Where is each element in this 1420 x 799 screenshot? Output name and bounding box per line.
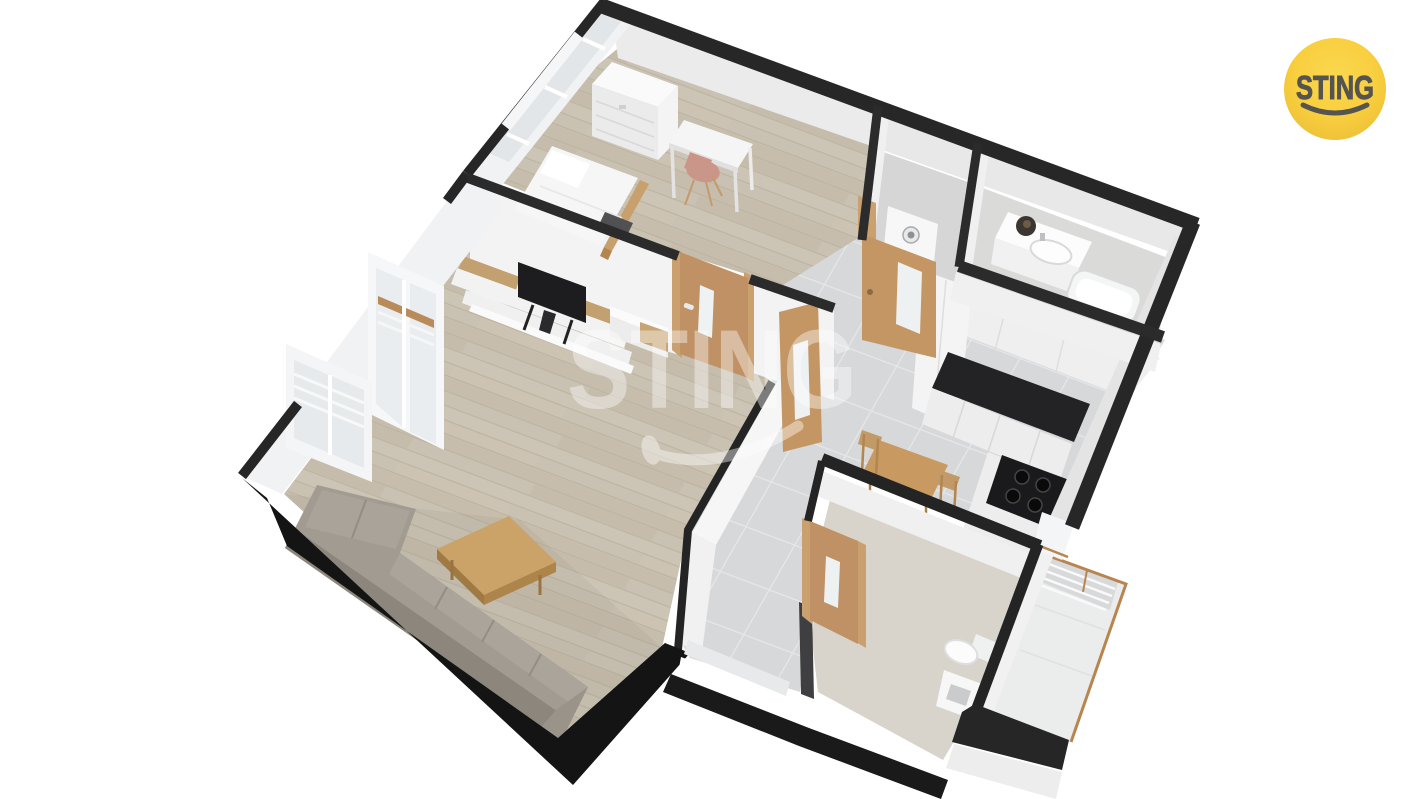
svg-text:STING: STING bbox=[1296, 69, 1374, 106]
svg-text:STING: STING bbox=[567, 307, 857, 432]
